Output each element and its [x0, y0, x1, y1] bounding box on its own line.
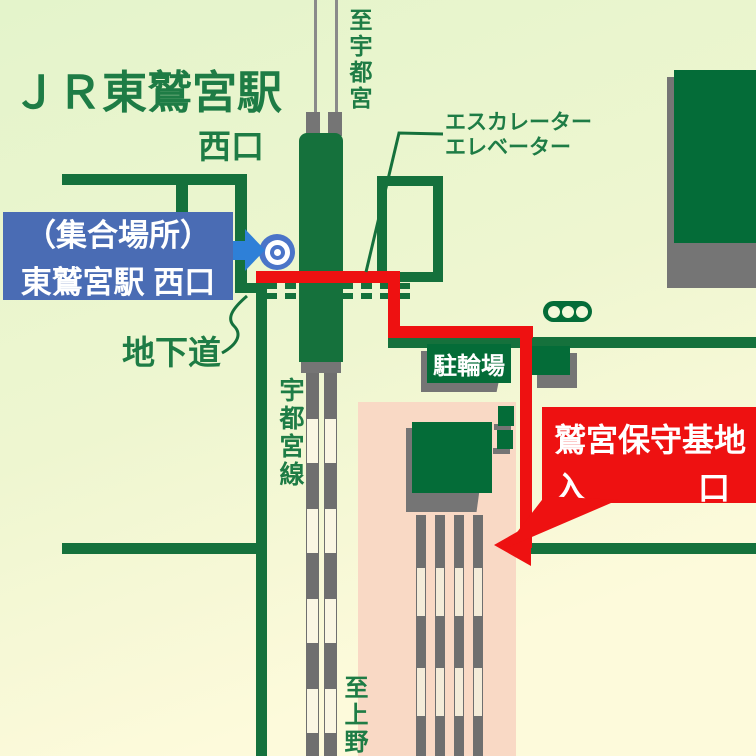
base-track-2 — [435, 515, 445, 756]
meeting-point-arrow-icon — [245, 229, 265, 271]
marker-center — [274, 249, 281, 256]
escalator-label-line2: エレベーター — [445, 135, 592, 160]
hut-1 — [498, 406, 514, 426]
small-box — [532, 346, 570, 375]
station-building — [299, 133, 343, 362]
destination-entrance-left: 入 — [554, 463, 586, 509]
escalator-label: エスカレーター エレベーター — [445, 110, 592, 160]
to-ueno-label: 至上野 — [336, 675, 371, 756]
destination-callout: 鷲宮保守基地 入 口 — [542, 407, 756, 503]
escalator-structure — [377, 176, 443, 282]
meeting-point-box: （集合場所） 東鷲宮駅 西口 — [3, 212, 233, 300]
to-utsunomiya-label: 至宇都宮 — [342, 8, 376, 112]
underpass-callout-line — [222, 296, 247, 353]
signal-dot — [576, 306, 588, 318]
escalator-label-line1: エスカレーター — [445, 110, 592, 135]
base-track-4 — [473, 515, 483, 756]
underpass-label: 地下道 — [122, 326, 221, 374]
rail-line-up-left — [314, 0, 317, 113]
destination-line1: 鷲宮保守基地 — [542, 415, 756, 461]
marker-ring-white — [265, 240, 290, 265]
route-segment-c — [388, 326, 533, 338]
road-bottom-right — [520, 543, 756, 554]
base-track-1 — [416, 515, 426, 756]
station-building-base — [301, 362, 341, 373]
rail-line-up-right — [335, 0, 338, 113]
traffic-signal-icon — [543, 301, 592, 322]
base-building — [412, 422, 492, 493]
route-segment-a — [256, 271, 400, 283]
meeting-point-line2: 東鷲宮駅 西口 — [21, 257, 216, 302]
bicycle-parking-box: 駐輪場 — [427, 344, 511, 383]
road-vertical-main — [256, 287, 267, 756]
marker-ring-blue — [270, 245, 285, 260]
route-segment-d — [520, 326, 532, 548]
building-topright — [674, 70, 756, 243]
bicycle-parking-label: 駐輪場 — [433, 346, 505, 381]
road-top-left — [62, 174, 247, 185]
destination-entrance-right: 口 — [698, 463, 730, 509]
road-vertical-1 — [176, 185, 188, 213]
page-title: ＪＲ東鷲宮駅 — [12, 56, 282, 121]
utsunomiya-line-label: 宇都宮線 — [272, 377, 308, 489]
hut-2 — [497, 430, 513, 449]
signal-dot — [548, 306, 560, 318]
signal-dot — [562, 306, 574, 318]
base-track-3 — [454, 515, 464, 756]
meeting-point-line1: （集合場所） — [25, 210, 211, 255]
west-exit-label: 西口 — [198, 120, 264, 168]
route-arrowhead — [494, 524, 531, 566]
road-bottom-left — [62, 543, 267, 554]
route-map: 駐輪場 （集合場所） 東鷲宮駅 西口 鷲宮保守基地 入 口 — [0, 0, 756, 756]
